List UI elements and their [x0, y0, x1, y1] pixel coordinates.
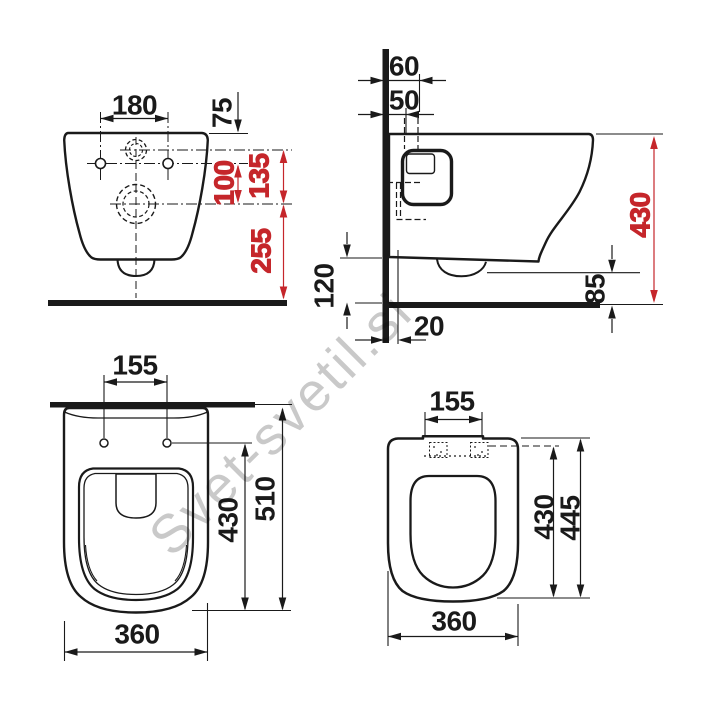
- arrow-down: [241, 598, 249, 611]
- arrow-left: [65, 648, 78, 656]
- dim-front-holes-span: 180: [101, 90, 169, 123]
- left-seat-hole: [100, 439, 108, 447]
- right-mount-hole: [163, 159, 173, 169]
- arrow-down: [608, 260, 616, 273]
- arrow-right: [469, 416, 482, 424]
- dim-label-445: 445: [555, 495, 586, 540]
- arrow-up: [577, 439, 585, 452]
- hinge-dot: [474, 446, 476, 448]
- right-seat-hole: [163, 439, 171, 447]
- arrow-up: [650, 136, 658, 149]
- toilet-dimension-drawing: 180 75 100 135 255: [0, 0, 709, 713]
- arrow-down: [279, 598, 287, 611]
- arrow-right: [371, 111, 384, 119]
- wall-line: [50, 402, 255, 408]
- arrow-left: [425, 416, 438, 424]
- dim-label-60: 60: [389, 51, 419, 82]
- dim-label-430: 430: [625, 192, 656, 237]
- seat-opening: [411, 476, 496, 588]
- arrow-up: [280, 205, 288, 218]
- arrow-up: [550, 447, 558, 460]
- arrow-up: [280, 150, 288, 163]
- dim-front-rim-to-holes: 75: [207, 92, 249, 134]
- dim-label-360: 360: [114, 619, 159, 650]
- dim-label-135: 135: [244, 153, 275, 198]
- arrow-right: [371, 77, 384, 85]
- dim-side-flush-offset: 50: [358, 85, 434, 134]
- dim-side-outlet-clearance: 85: [580, 245, 616, 333]
- dim-label-120: 120: [309, 263, 340, 308]
- arrow-down: [343, 245, 351, 258]
- dim-label-75: 75: [207, 98, 238, 128]
- dim-front-drain-to-floor: 255: [246, 205, 288, 300]
- seat-plan-view: 155 430 445 360: [388, 386, 590, 647]
- dim-side-underside-clearance: 120: [309, 232, 351, 329]
- hinge-dot: [477, 454, 479, 456]
- arrow-up: [608, 306, 616, 319]
- floor-line: [386, 302, 600, 308]
- left-mount-hole: [96, 159, 106, 169]
- dim-front-holes-to-drain: 100: [209, 160, 242, 205]
- dim-front-inlet-to-drain: 135: [244, 150, 288, 204]
- floor-line: [48, 300, 287, 306]
- arrow-down: [280, 191, 288, 204]
- arrow-left: [420, 77, 433, 85]
- arrow-down: [577, 585, 585, 598]
- arrow-right: [505, 633, 518, 641]
- dim-label-155: 155: [429, 386, 474, 417]
- arrow-right: [195, 648, 208, 656]
- arrow-left: [388, 633, 401, 641]
- hinge-dot: [440, 451, 442, 453]
- arrow-down: [650, 290, 658, 303]
- hinge-dot: [481, 451, 483, 453]
- arrow-down: [550, 585, 558, 598]
- hinge-dot: [436, 454, 438, 456]
- front-view: 180 75 100 135 255: [48, 90, 292, 307]
- hinge-dot: [433, 446, 435, 448]
- outlet-bump: [437, 259, 486, 276]
- dim-label-100: 100: [209, 160, 240, 205]
- dim-label-50: 50: [389, 85, 419, 116]
- dim-label-360: 360: [431, 606, 476, 637]
- dim-label-180: 180: [112, 90, 157, 121]
- arrow-down: [280, 287, 288, 300]
- dim-label-255: 255: [246, 228, 277, 273]
- technical-drawing-sheet: 180 75 100 135 255: [0, 0, 709, 713]
- flush-connector-inner: [407, 154, 435, 174]
- dim-seat-hinge-span: 155: [425, 386, 482, 437]
- dim-label-85: 85: [580, 274, 611, 304]
- dim-label-155: 155: [112, 350, 157, 381]
